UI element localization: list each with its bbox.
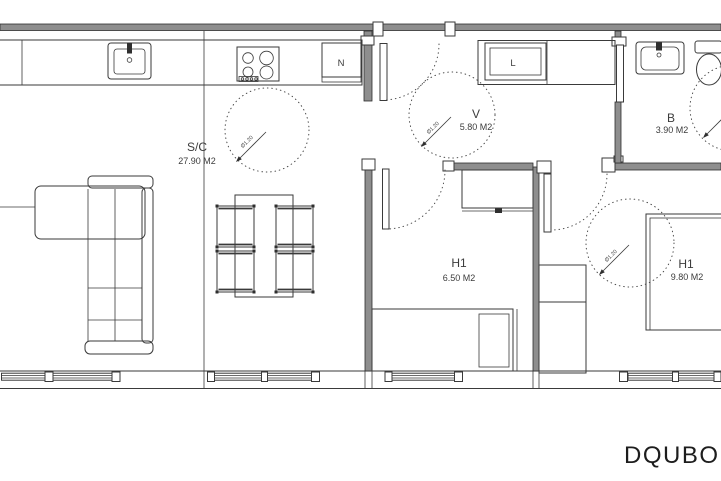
chair [275, 205, 315, 249]
window-mullion [455, 372, 463, 382]
bathroom-left-wall [615, 102, 621, 163]
kitchen-counter: N [0, 40, 362, 85]
chair [275, 250, 315, 294]
room-label-h1a: H1 [451, 256, 467, 270]
window-mullion [673, 372, 679, 382]
room-area-sc: 27.90 M2 [178, 156, 216, 166]
door-swing-arc [383, 44, 439, 100]
wall-jamb [602, 158, 615, 172]
door-swing-arc [551, 174, 607, 230]
bathroom-door [617, 45, 624, 102]
room-area-b: 3.90 M2 [656, 125, 689, 135]
turning-circle-dim: Ø1.20 [604, 249, 619, 264]
window-mullion [208, 372, 215, 382]
toilet-icon [695, 41, 721, 85]
brand-text: DQUBO [624, 442, 720, 469]
door-leaf [380, 44, 387, 101]
window [52, 373, 112, 380]
window-mullion [45, 372, 53, 382]
laundry-counter: L [478, 41, 615, 85]
window-mullion [714, 372, 721, 382]
turning-circle [586, 199, 674, 287]
window [214, 373, 262, 380]
bedrooms-divider-wall [533, 167, 539, 371]
window [678, 373, 717, 380]
room-area-h1a: 6.50 M2 [443, 273, 476, 283]
door-leaf [544, 174, 551, 232]
turning-circle-dim: Ø1.20 [426, 121, 441, 136]
window-mullion [620, 372, 628, 382]
door-leaf [383, 169, 390, 229]
vanity-sink-icon [636, 42, 684, 74]
bedroom1-left-wall [365, 163, 372, 371]
windows [2, 372, 721, 382]
window [2, 373, 46, 380]
room-label-h1b: H1 [678, 257, 694, 271]
exterior-walls [0, 24, 721, 389]
top-wall [0, 24, 721, 31]
bedroom1-furniture [372, 170, 533, 371]
wall-jamb [443, 161, 454, 171]
room-label-b: B [667, 111, 675, 125]
brand-logo: DQUBO [624, 442, 720, 469]
bathroom-fixtures [636, 41, 721, 85]
floor-plan: N L [0, 0, 721, 481]
room-area-h1b: 9.80 M2 [671, 272, 704, 282]
wall-jamb [362, 159, 375, 170]
fridge-label: N [338, 58, 345, 69]
dining-set [216, 195, 315, 297]
entrance-door [380, 44, 439, 101]
sink-icon [108, 43, 151, 80]
turning-circle-dim: Ø1.20 [240, 135, 255, 150]
bedroom1-door [383, 169, 446, 229]
window-mullion [385, 372, 392, 382]
closet [462, 170, 533, 213]
bedroom1-top-wall [445, 163, 533, 170]
window-mullion [312, 372, 320, 382]
fridge-cabinet: N [322, 43, 361, 82]
entrance-jamb [445, 22, 455, 36]
room-label-v: V [472, 107, 480, 121]
sofa [0, 176, 153, 354]
room-label-sc: S/C [187, 140, 207, 154]
doors [380, 44, 624, 233]
window [267, 373, 312, 380]
floor-plan-drawing: N L [0, 0, 721, 481]
stove-icon [237, 47, 279, 82]
door-swing-arc [386, 170, 445, 229]
washer-label: L [510, 58, 515, 69]
entrance-jamb [373, 22, 383, 36]
door-leaf [617, 45, 624, 102]
bed-single [372, 309, 517, 371]
wall-jamb [537, 161, 551, 173]
bedroom2-furniture [539, 214, 721, 373]
washer-cabinet: L [485, 43, 546, 80]
wall-jamb [361, 36, 374, 45]
window [391, 373, 455, 380]
window [628, 373, 673, 380]
bedroom2-door [544, 174, 607, 232]
dining-table [235, 195, 293, 297]
window-mullion [112, 372, 120, 382]
window-mullion [262, 372, 268, 382]
room-area-v: 5.80 M2 [460, 122, 493, 132]
pillow [479, 314, 509, 367]
bedroom2-top-wall [604, 163, 721, 170]
turning-circle [690, 65, 721, 151]
storage-unit [539, 265, 586, 373]
